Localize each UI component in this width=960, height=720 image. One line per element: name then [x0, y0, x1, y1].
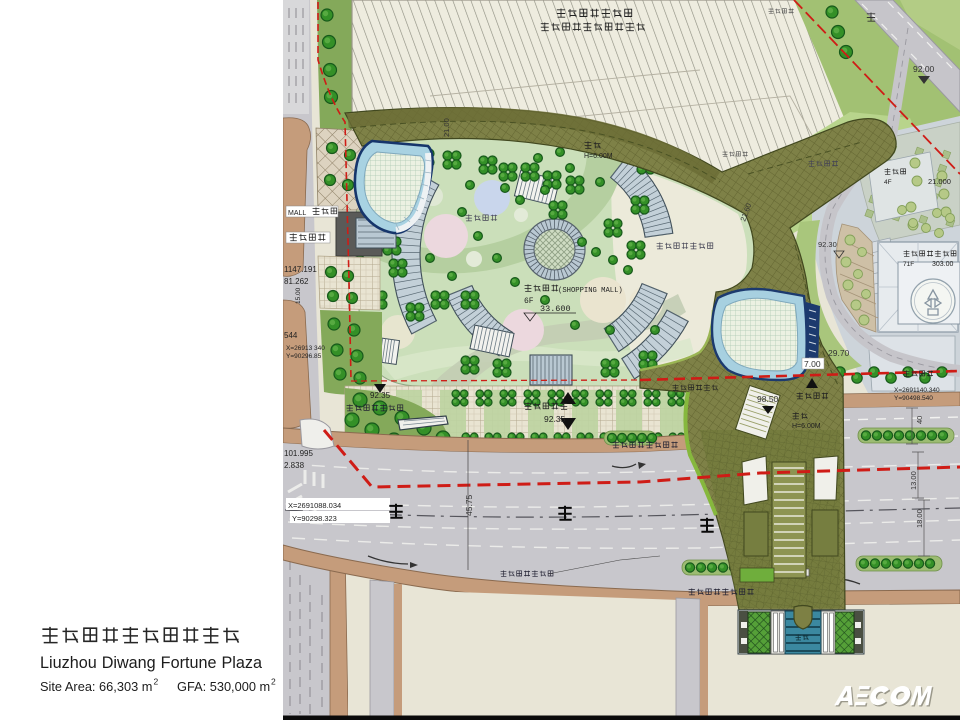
svg-text:33.600: 33.600 [540, 304, 571, 314]
svg-text:GFA: 530,000 m: GFA: 530,000 m [177, 679, 270, 694]
svg-text:Y=90296.85: Y=90296.85 [286, 353, 322, 360]
svg-text:81.262: 81.262 [284, 277, 309, 286]
svg-text:101.995: 101.995 [284, 449, 313, 458]
svg-text:18.00: 18.00 [915, 509, 924, 528]
svg-text:40: 40 [915, 416, 924, 424]
svg-text:303.00: 303.00 [932, 261, 954, 268]
svg-text:1147.191: 1147.191 [284, 265, 317, 274]
svg-text:Y=90498.540: Y=90498.540 [894, 395, 933, 402]
svg-text:71F: 71F [903, 261, 914, 268]
svg-text:2: 2 [271, 677, 276, 687]
svg-text:Y=90298.323: Y=90298.323 [292, 514, 337, 523]
svg-text:21.000: 21.000 [928, 177, 951, 186]
svg-text:4F: 4F [884, 179, 892, 186]
svg-text:X=2691088.034: X=2691088.034 [288, 501, 341, 510]
svg-text:92.00: 92.00 [913, 64, 935, 74]
svg-text:21.00: 21.00 [442, 118, 451, 137]
svg-text:45.75: 45.75 [464, 494, 474, 516]
svg-text:H=6.00M: H=6.00M [792, 423, 821, 430]
svg-text:7.00: 7.00 [804, 359, 821, 369]
svg-text:15.00: 15.00 [295, 287, 302, 304]
svg-text:92.35: 92.35 [544, 414, 566, 424]
svg-text:X=26913 340: X=26913 340 [286, 345, 325, 352]
svg-text:6F: 6F [524, 297, 534, 306]
svg-text:2.838: 2.838 [284, 461, 305, 470]
svg-text:(SHOPPING MALL): (SHOPPING MALL) [558, 287, 623, 295]
svg-text:X=2691140.340: X=2691140.340 [894, 387, 940, 394]
svg-text:13.00: 13.00 [909, 471, 918, 490]
svg-text:544: 544 [284, 331, 298, 340]
svg-text:92.30: 92.30 [818, 240, 837, 249]
svg-text:29.70: 29.70 [828, 348, 850, 358]
svg-text:Site Area: 66,303 m: Site Area: 66,303 m [40, 679, 152, 694]
svg-text:H=6.00M: H=6.00M [584, 153, 613, 160]
svg-text:Liuzhou Diwang Fortune Plaza: Liuzhou Diwang Fortune Plaza [40, 654, 262, 672]
svg-text:MALL: MALL [288, 210, 306, 217]
svg-text:2: 2 [154, 677, 159, 687]
svg-text:98.50: 98.50 [757, 394, 779, 404]
